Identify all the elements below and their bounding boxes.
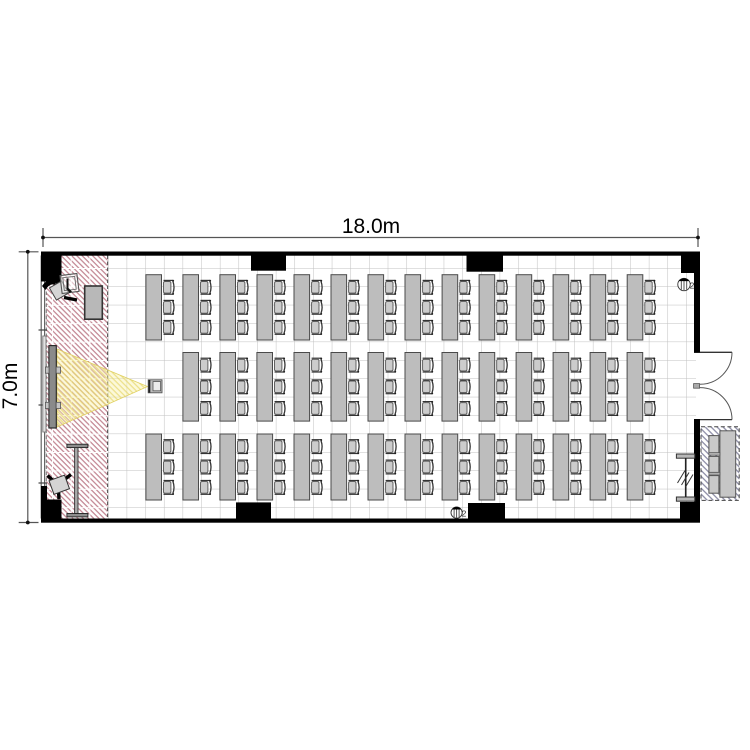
svg-text:7.0m: 7.0m: [0, 363, 22, 410]
svg-text:2: 2: [690, 280, 695, 290]
svg-text:18.0m: 18.0m: [342, 215, 400, 238]
svg-text:2: 2: [462, 508, 467, 518]
